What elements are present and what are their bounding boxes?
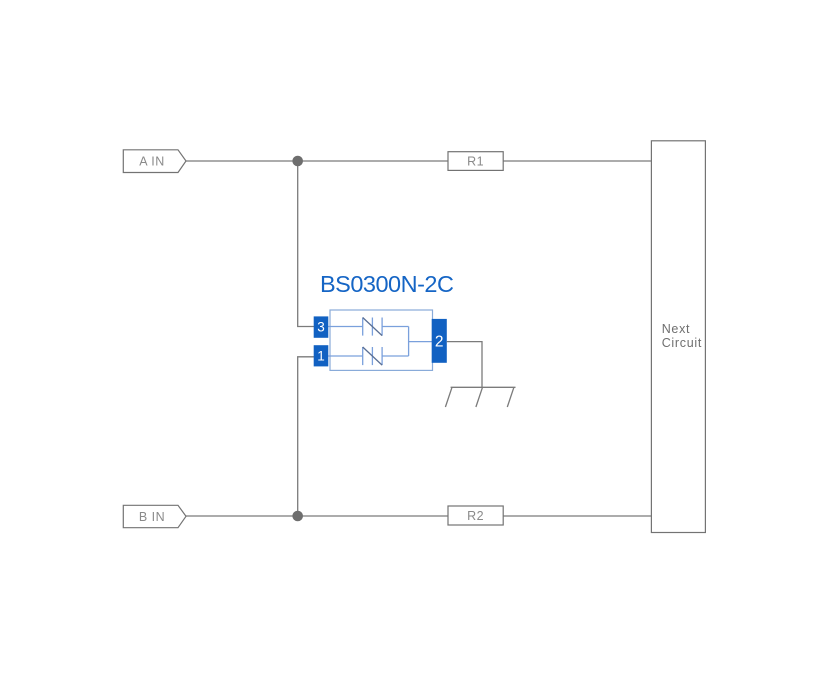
svg-text:B IN: B IN — [139, 510, 165, 524]
svg-text:3: 3 — [317, 320, 325, 335]
svg-text:R2: R2 — [467, 509, 484, 523]
svg-text:A IN: A IN — [139, 155, 165, 169]
svg-text:2: 2 — [435, 333, 444, 350]
svg-text:Circuit: Circuit — [662, 336, 702, 350]
svg-text:Next: Next — [662, 322, 691, 336]
svg-text:R1: R1 — [467, 154, 484, 168]
svg-text:BS0300N-2C: BS0300N-2C — [320, 271, 454, 297]
svg-text:1: 1 — [317, 348, 325, 363]
